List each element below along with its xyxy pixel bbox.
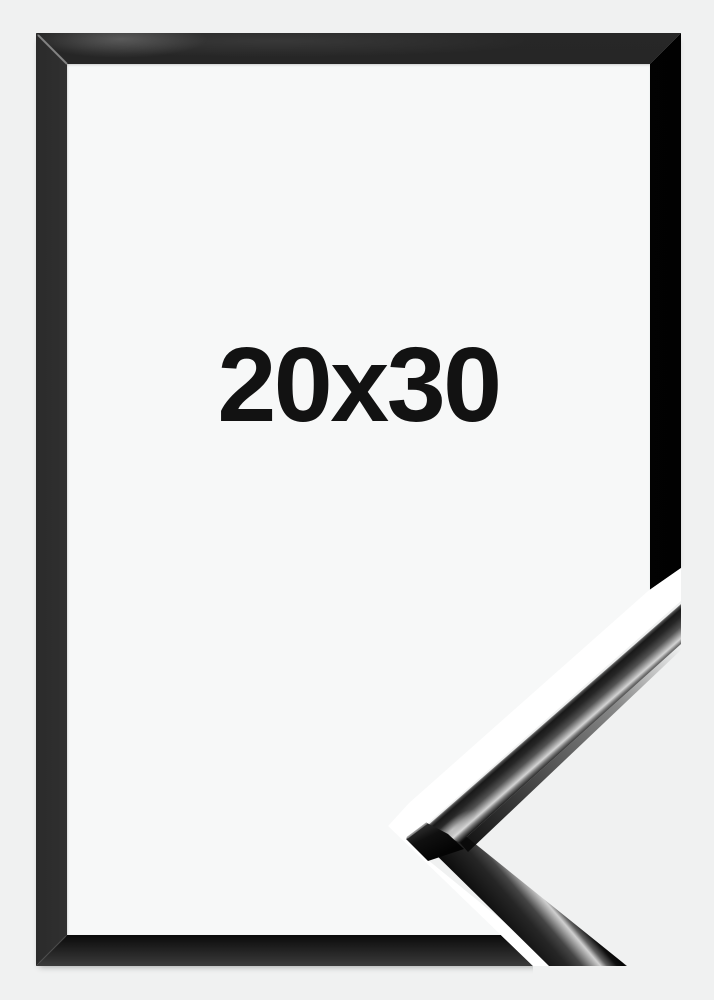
- frame-opening: 20x30: [67, 64, 650, 935]
- frame-size-label: 20x30: [67, 332, 650, 438]
- picture-frame: 20x30: [36, 33, 681, 966]
- frame-product-photo: 20x30: [0, 0, 714, 1000]
